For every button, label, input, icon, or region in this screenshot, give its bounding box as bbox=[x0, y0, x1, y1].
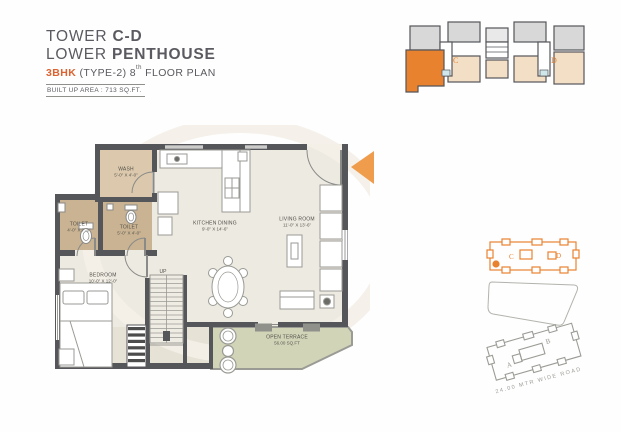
plan-subtitle: 3BHK (TYPE-2) 8th FLOOR PLAN bbox=[46, 67, 276, 79]
room-label-toilet-mid: TOILET5'-0" X 4'-0" bbox=[117, 224, 140, 235]
siteplan-tower-b-label: B bbox=[545, 337, 552, 346]
page-title-block: TOWER C-D LOWER PENTHOUSE 3BHK (TYPE-2) … bbox=[46, 28, 276, 97]
siteplan-tower-cd bbox=[487, 239, 579, 273]
builtup-area-label: BUILT UP AREA : 713 SQ.FT. bbox=[46, 84, 145, 97]
room-label-kitchen-dining: KITCHEN DINING9'-0" X 14'-6" bbox=[193, 220, 237, 231]
floorplan-drawing bbox=[50, 125, 370, 375]
wc-tank-icon bbox=[125, 205, 137, 210]
wardrobe-icon bbox=[127, 325, 146, 367]
keyplan-tower-c-label: C bbox=[453, 56, 458, 65]
couch-icon bbox=[280, 291, 314, 309]
siteplan-tower-c-label: C bbox=[509, 253, 514, 261]
siteplan-tower-a-label: A bbox=[506, 361, 513, 370]
siteplan-plot-outline bbox=[488, 282, 578, 325]
nav-left-arrow-icon[interactable] bbox=[351, 151, 374, 184]
room-label-terrace: OPEN TERRACE56.00 SQ.FT bbox=[266, 334, 308, 345]
room-label-living: LIVING ROOM11'-0" X 13'-6" bbox=[279, 216, 315, 227]
siteplan: C D A B 24.00 MTR WIDE ROAD bbox=[476, 230, 616, 400]
floorplan-page: TOWER C-D LOWER PENTHOUSE 3BHK (TYPE-2) … bbox=[0, 0, 621, 432]
shaft-door-icon bbox=[238, 152, 247, 161]
tower-title: TOWER C-D bbox=[46, 28, 276, 46]
room-label-wash: WASH5'-0" X 4'-0" bbox=[114, 166, 137, 177]
keyplan-blocks bbox=[406, 22, 584, 92]
tap-icon bbox=[107, 204, 113, 210]
stairs-up-label: UP bbox=[160, 269, 167, 275]
room-label-bedroom: BEDROOM10'-0" X 12'-0" bbox=[89, 272, 117, 283]
penthouse-title: LOWER PENTHOUSE bbox=[46, 46, 276, 64]
siteplan-tower-d-label: D bbox=[556, 252, 561, 260]
keyplan-building-strip: C D bbox=[398, 16, 593, 104]
room-label-toilet-left: TOILET4'-0" X 7'-0" bbox=[67, 221, 90, 232]
staircase bbox=[150, 275, 183, 345]
basin-icon bbox=[58, 203, 65, 212]
sofa-icon bbox=[320, 185, 342, 211]
keyplan-highlighted-unit bbox=[406, 50, 444, 92]
keyplan-tower-d-label: D bbox=[551, 56, 557, 65]
